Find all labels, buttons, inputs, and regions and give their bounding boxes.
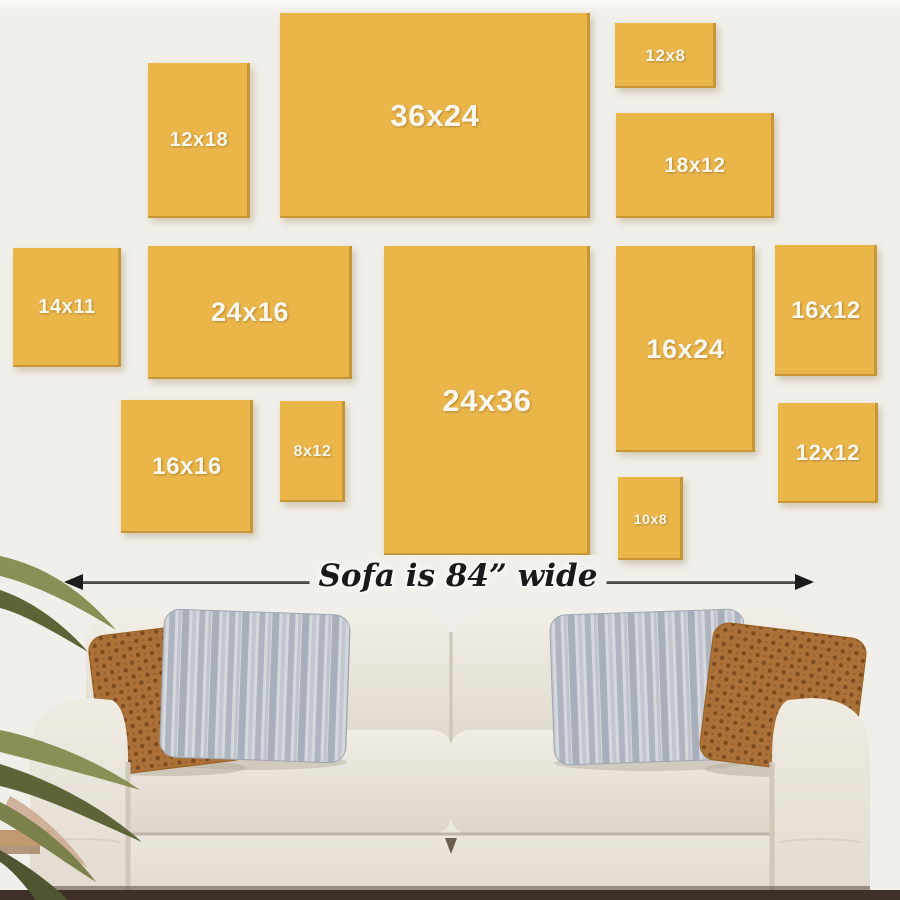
pillow-stripe-left — [159, 609, 350, 763]
frame-24x36: 24x36 — [384, 246, 590, 555]
frame-12x12: 12x12 — [778, 403, 878, 503]
sofa-illustration — [0, 550, 900, 900]
frame-size-label: 12x12 — [796, 440, 860, 466]
frame-10x8: 10x8 — [618, 477, 683, 560]
frame-size-label: 16x16 — [152, 453, 222, 481]
frame-size-label: 12x8 — [645, 46, 685, 66]
frame-36x24: 36x24 — [280, 13, 590, 218]
frame-8x12: 8x12 — [280, 401, 345, 502]
frame-size-label: 24x16 — [211, 297, 289, 328]
frame-size-label: 16x12 — [791, 297, 861, 325]
frame-16x12: 16x12 — [775, 245, 877, 376]
frame-size-label: 10x8 — [634, 511, 668, 527]
frame-size-label: 8x12 — [294, 443, 332, 461]
frame-14x11: 14x11 — [13, 248, 121, 367]
frame-24x16: 24x16 — [148, 246, 352, 379]
frame-12x18: 12x18 — [148, 63, 250, 218]
frame-size-label: 12x18 — [170, 129, 229, 152]
frame-size-label: 24x36 — [442, 383, 531, 419]
frame-size-label: 18x12 — [664, 154, 725, 178]
frame-18x12: 18x12 — [616, 113, 774, 218]
frame-16x16: 16x16 — [121, 400, 253, 533]
wall-art-size-guide: 12x1836x2412x818x1214x1124x1624x3616x241… — [0, 0, 900, 900]
frame-size-label: 16x24 — [646, 334, 724, 365]
frame-16x24: 16x24 — [616, 246, 755, 452]
frame-size-label: 14x11 — [38, 296, 96, 319]
frame-size-label: 36x24 — [390, 98, 479, 134]
frame-12x8: 12x8 — [615, 23, 716, 88]
